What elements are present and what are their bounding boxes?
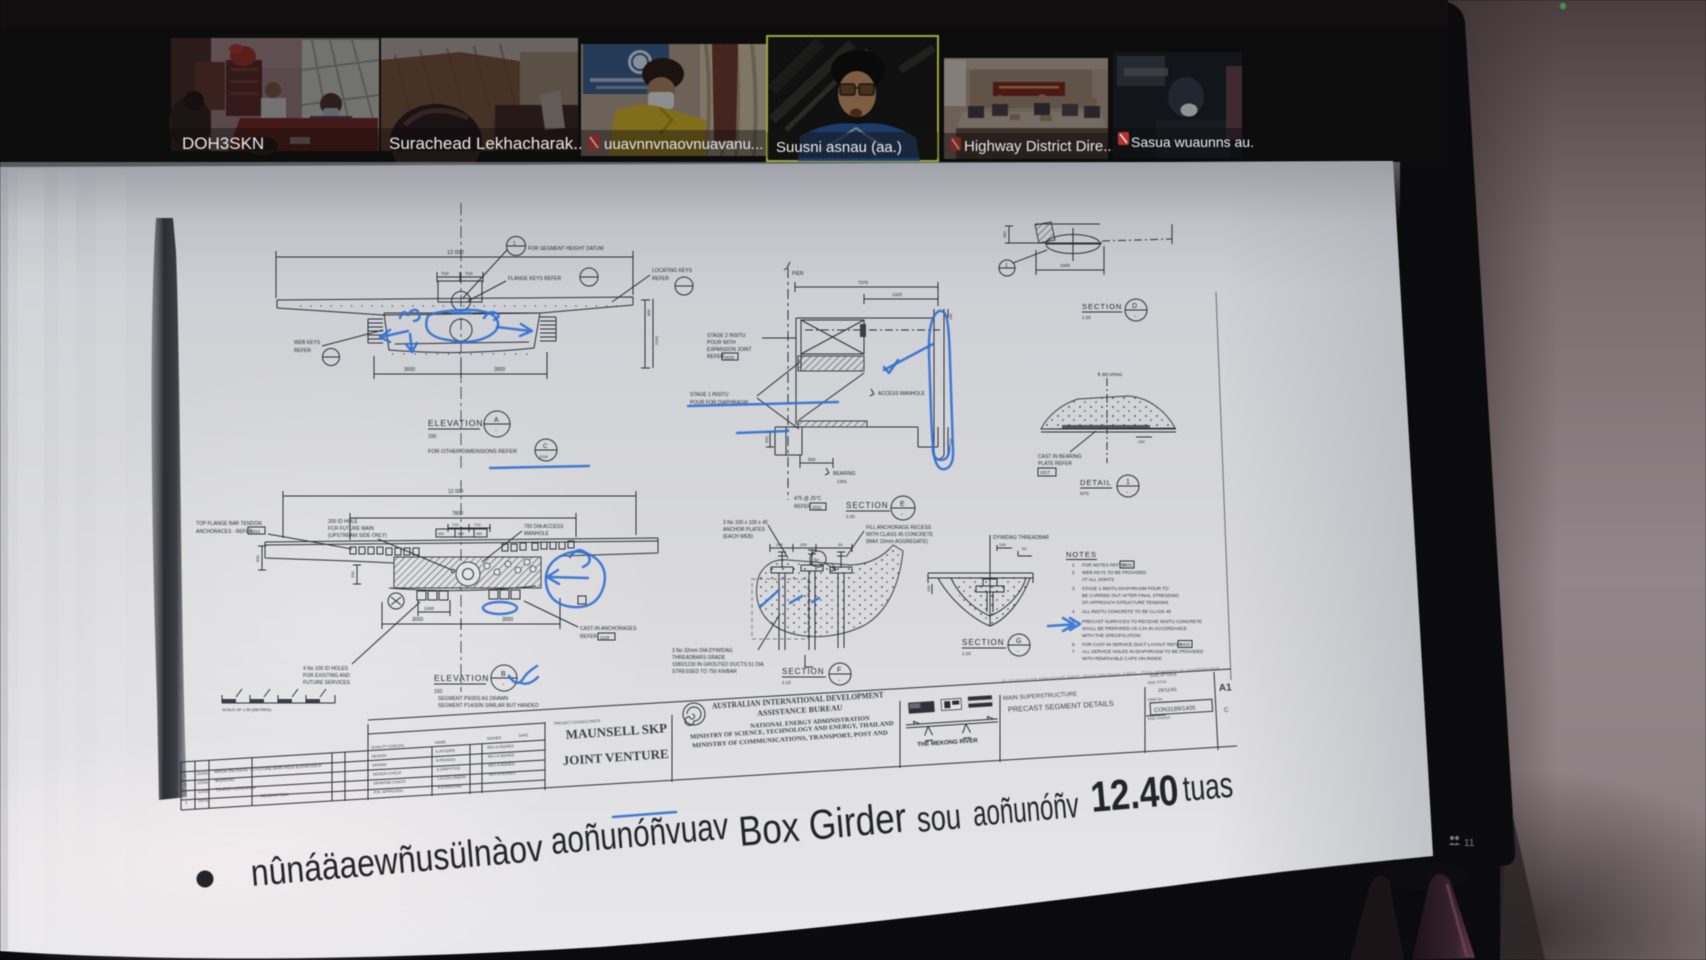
svg-text:150: 150 [428,434,437,440]
svg-text:11: 11 [1464,838,1475,849]
svg-text:BEARING: BEARING [833,471,856,477]
svg-text:SEGMENT P9/30S AS DRAWN: SEGMENT P9/30S AS DRAWN [438,696,509,702]
svg-text:STAGE 1 INSITU DIAPHRAGM POUR: STAGE 1 INSITU DIAPHRAGM POUR TO [1082,586,1169,591]
svg-text:REFER: REFER [794,504,811,510]
svg-text:℄ BEARING: ℄ BEARING [1097,372,1123,377]
svg-text:SECTION: SECTION [1082,302,1122,311]
svg-text:-: - [1017,649,1019,655]
svg-text:475 @ 25°C: 475 @ 25°C [794,496,822,502]
svg-text:POUR WITH: POUR WITH [707,340,736,346]
svg-text:(UPSTREAM SIDE ONLY): (UPSTREAM SIDE ONLY) [328,533,387,539]
svg-text:-: - [1134,314,1136,320]
svg-text:1: 1 [1126,479,1130,486]
svg-text:Suusni asnau (aa.): Suusni asnau (aa.) [776,139,902,156]
svg-text:1000: 1000 [424,606,435,611]
svg-text:F: F [837,667,841,674]
svg-text:1080/1230 IN GROUTED DUCTS 51: 1080/1230 IN GROUTED DUCTS 51 DIA [672,662,764,668]
svg-text:WITH REMOVABLE CAPS ON INSIDE: WITH REMOVABLE CAPS ON INSIDE [1082,656,1162,661]
svg-text:1:20: 1:20 [1082,315,1091,320]
svg-text:-: - [502,682,504,688]
svg-text:-: - [1126,490,1128,496]
svg-text:SECTION: SECTION [846,501,889,510]
svg-text:REFER: REFER [652,276,669,282]
svg-text:FLANGE KEYS REFER: FLANGE KEYS REFER [508,276,561,282]
svg-text:100: 100 [999,542,1006,547]
svg-text:680: 680 [458,532,464,536]
svg-text:SECTION: SECTION [962,638,1005,647]
svg-text:1325: 1325 [892,292,903,297]
svg-text:-: - [838,678,840,684]
svg-text:12 000: 12 000 [447,250,464,256]
svg-text:ALL INSITU CONCRETE TO BE CLAS: ALL INSITU CONCRETE TO BE CLASS 45 [1082,609,1171,614]
svg-text:DOH3SKN: DOH3SKN [182,134,264,153]
svg-text:1104: 1104 [539,454,548,459]
svg-text:200 ID HOLE: 200 ID HOLE [328,519,358,525]
svg-text:DWG No: DWG No [1148,697,1163,702]
svg-text:D: D [1132,303,1137,310]
svg-text:1421: 1421 [1180,642,1191,647]
svg-text:OF APPROACH STRUCTURE TENDONS: OF APPROACH STRUCTURE TENDONS [1082,600,1168,605]
svg-text:1: 1 [513,241,516,247]
svg-text:-: - [495,428,497,434]
svg-text:1: 1 [1005,263,1008,269]
svg-text:A: A [494,417,499,424]
svg-text:1118: 1118 [600,635,610,640]
svg-text:FOR OTHER DIMENSIONS REFER: FOR OTHER DIMENSIONS REFER [428,449,517,455]
svg-text:700 DIA ACCESS: 700 DIA ACCESS [524,524,564,530]
svg-text:12.40: 12.40 [1089,766,1181,821]
svg-text:245: 245 [948,313,953,320]
svg-text:WEB KEYS: WEB KEYS [294,340,321,346]
svg-text:(MAX 10mm AGGREGATE): (MAX 10mm AGGREGATE) [866,539,928,545]
svg-text:4: 4 [1072,609,1075,614]
svg-text:2: 2 [1072,570,1075,575]
svg-text:29/11/91: 29/11/91 [1158,687,1178,694]
svg-text:SCALE OF 1:50 (METRES): SCALE OF 1:50 (METRES) [222,707,272,712]
svg-text:900: 900 [438,532,444,536]
svg-text:sou: sou [915,795,962,840]
svg-text:WEB KEYS TO BE PROVIDED: WEB KEYS TO BE PROVIDED [1082,570,1147,575]
svg-text:G: G [1016,638,1021,645]
svg-text:NAME: NAME [435,740,447,745]
svg-text:ELEVATION: ELEVATION [434,673,489,683]
svg-text:C: C [1224,707,1229,714]
svg-text:PLATE REFER: PLATE REFER [1038,461,1072,467]
svg-text:E: E [900,501,905,508]
svg-text:3000: 3000 [502,617,513,623]
svg-text:150: 150 [926,585,931,592]
svg-text:1:20: 1:20 [846,514,855,519]
svg-text:15/4/91: 15/4/91 [196,770,210,776]
svg-text:MANHOLE: MANHOLE [524,531,549,537]
svg-text:STAGE 2 INSITU: STAGE 2 INSITU [707,333,746,339]
svg-text:AT ALL JOINTS: AT ALL JOINTS [1082,577,1114,582]
svg-text:SECTION: SECTION [782,667,825,676]
svg-text:Sasua wuaunns au.: Sasua wuaunns au. [1131,134,1254,150]
svg-text:THREADBARS GRADE: THREADBARS GRADE [672,655,726,661]
svg-text:B: B [501,671,506,678]
svg-text:800: 800 [255,555,260,562]
svg-text:6c: 6c [814,558,820,564]
svg-text:C: C [543,444,548,450]
svg-text:450: 450 [476,532,482,536]
svg-text:NOTES: NOTES [1066,550,1097,559]
svg-text:SHALL BE PREPARED AS CJ's IN A: SHALL BE PREPARED AS CJ's IN ACCORDANCE [1082,626,1187,631]
svg-text:DATE: DATE [519,733,530,738]
svg-text:FOR CAST-IN SERVICE DUCT LAYOU: FOR CAST-IN SERVICE DUCT LAYOUT REFER [1082,642,1183,647]
svg-text:DRAWN: DRAWN [372,763,387,768]
svg-text:3000: 3000 [412,617,423,623]
svg-text:1301: 1301 [837,479,848,484]
svg-text:7: 7 [1072,649,1075,654]
svg-text:-: - [901,512,903,518]
svg-text:STRESSED TO 750 KN/BAR: STRESSED TO 750 KN/BAR [672,669,737,675]
svg-text:ACCESS MANHOLE: ACCESS MANHOLE [878,391,925,397]
svg-text:PRECAST SURFACES TO RECEIVE IN: PRECAST SURFACES TO RECEIVE INSITU CONCR… [1082,619,1202,624]
svg-text:6: 6 [1072,642,1075,647]
svg-text:7375: 7375 [858,280,869,285]
svg-text:800: 800 [646,309,651,316]
svg-text:FOR EXISTING AND: FOR EXISTING AND [303,673,350,679]
svg-text:710: 710 [452,522,459,527]
svg-text:1:10: 1:10 [962,651,971,656]
svg-text:ELEVATION: ELEVATION [428,418,483,428]
svg-text:12 000: 12 000 [448,489,464,495]
svg-text:tuas: tuas [1181,764,1234,809]
svg-text:1401: 1401 [1122,563,1133,568]
svg-text:3000: 3000 [404,367,415,373]
svg-text:710: 710 [474,522,481,527]
svg-text:WITH THE SPECIFICATION: WITH THE SPECIFICATION [1082,633,1140,638]
svg-text:REFER: REFER [294,348,311,354]
svg-text:1:10: 1:10 [782,680,791,685]
svg-text:3000: 3000 [494,367,505,373]
svg-text:650: 650 [764,436,769,443]
svg-text:PIER: PIER [792,271,804,277]
svg-text:1/2/91: 1/2/91 [197,779,209,785]
svg-text:DYWIDAG THREADBAR: DYWIDAG THREADBAR [993,535,1049,541]
svg-text:(EACH WEB): (EACH WEB) [723,534,753,540]
svg-text:1511: 1511 [812,505,822,510]
svg-text:500: 500 [808,457,816,462]
svg-text:Highway District Dire...: Highway District Dire... [964,138,1116,155]
svg-text:1: 1 [1072,563,1075,568]
svg-text:NTS: NTS [1080,491,1089,496]
svg-text:STAGE 1 INSITU: STAGE 1 INSITU [690,392,729,398]
svg-text:710: 710 [441,271,449,276]
svg-text:3: 3 [1072,586,1075,591]
svg-text:CAST IN BEARING: CAST IN BEARING [1038,454,1082,460]
svg-text:LOCATING KEYS: LOCATING KEYS [652,268,693,274]
svg-text:1517: 1517 [1040,470,1051,475]
svg-text:100: 100 [1138,439,1145,444]
svg-text:Surachead Lekhacharak...: Surachead Lekhacharak... [389,134,587,153]
svg-text:FCR FUTURE MAIN: FCR FUTURE MAIN [328,526,374,532]
svg-text:1/2/91: 1/2/91 [197,788,209,794]
svg-text:ANCHORACES - REFER: ANCHORACES - REFER [196,529,253,535]
svg-text:200: 200 [350,571,355,578]
svg-text:SEGMENT P14/30N SIMILAR BUT HA: SEGMENT P14/30N SIMILAR BUT HANDED [438,703,539,709]
svg-text:50: 50 [1022,546,1027,551]
svg-text:uuavnnvnaovnuavanu...: uuavnnvnaovnuavanu... [604,136,763,153]
svg-text:710: 710 [465,271,473,276]
svg-text:200: 200 [800,542,807,547]
svg-text:3 No 100 x 100 x 45: 3 No 100 x 100 x 45 [723,520,768,526]
svg-text:REFER: REFER [580,634,597,640]
svg-text:A1: A1 [1219,682,1233,694]
svg-text:1615: 1615 [724,355,735,360]
svg-text:3 No 32mm DIA DYWIDAG: 3 No 32mm DIA DYWIDAG [672,648,733,654]
svg-text:EXPANSION JOINT: EXPANSION JOINT [707,347,752,353]
svg-text:WITH CLASS 45 CONCRETE: WITH CLASS 45 CONCRETE [866,532,934,538]
svg-text:ANCHOR PLATES: ANCHOR PLATES [723,527,766,533]
svg-text:DETAIL: DETAIL [1080,478,1112,487]
svg-text:450: 450 [1002,231,1007,238]
svg-text:1414: 1414 [250,529,261,534]
svg-text:DATE: DATE [198,797,209,803]
svg-text:150: 150 [434,689,443,695]
svg-text:4 No 100 ID HOLES: 4 No 100 ID HOLES [303,666,349,672]
svg-text:ALL SERVICE HOLES IN DIAPHRAGM: ALL SERVICE HOLES IN DIAPHRAGM TO BE PRO… [1082,649,1204,654]
svg-text:FOR SEGMENT HEIGHT DATUM: FOR SEGMENT HEIGHT DATUM [528,246,604,252]
svg-text:FUTURE SERVICES: FUTURE SERVICES [303,680,351,686]
svg-text:50: 50 [838,542,843,547]
svg-text:BE CARRIED OUT AFTER FINAL STR: BE CARRIED OUT AFTER FINAL STRESSING [1082,593,1179,598]
svg-text:FILL ANCHORAGE RECESS: FILL ANCHORAGE RECESS [866,525,932,531]
svg-text:1000: 1000 [1060,263,1071,268]
svg-text:7800: 7800 [452,511,463,517]
svg-text:2100: 2100 [654,335,659,345]
svg-text:CAST-IN ANCHORAGES: CAST-IN ANCHORAGES [580,626,637,632]
svg-text:TOP FLANGE BAR TENDON: TOP FLANGE BAR TENDON [196,521,262,527]
